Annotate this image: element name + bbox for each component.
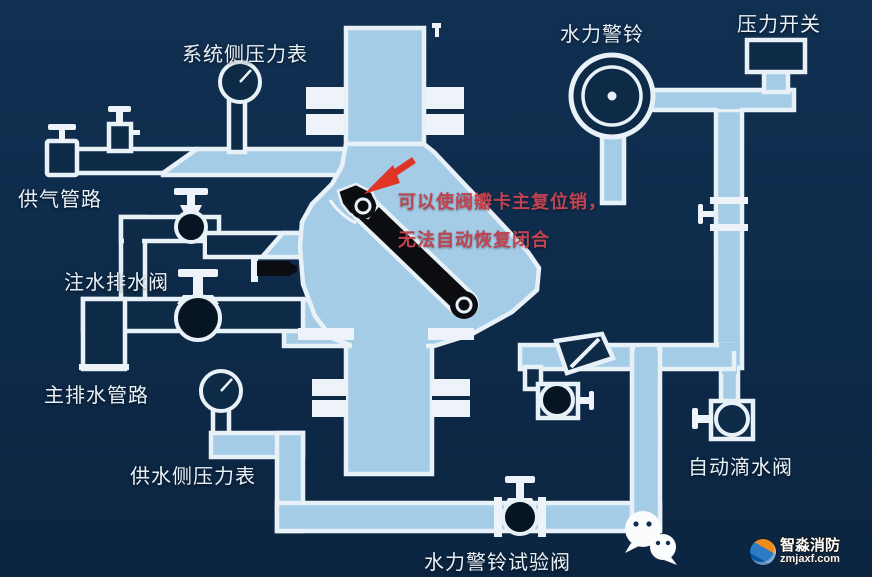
label-pressure-switch: 压力开关 <box>737 8 821 37</box>
label-auto-drip-valve: 自动滴水阀 <box>688 451 793 480</box>
annotation-line1: 可以使阀瓣卡主复位销， <box>398 188 607 214</box>
watermark-brand: 智淼消防 <box>780 538 840 554</box>
watermark: 智淼消防 zmjaxf.com <box>750 538 840 565</box>
system-riser <box>346 28 424 144</box>
air-supply-box <box>47 141 77 175</box>
label-supply-gauge: 供水侧压力表 <box>130 460 256 489</box>
label-system-gauge: 系统侧压力表 <box>182 38 308 67</box>
annotation-line2: 无法自动恢复闭合 <box>398 226 550 252</box>
label-air-supply: 供气管路 <box>18 183 102 212</box>
label-alarm-test-valve: 水力警铃试验阀 <box>424 546 571 575</box>
pressure-switch <box>747 40 805 72</box>
label-alarm-bell: 水力警铃 <box>560 18 644 47</box>
supply-riser <box>346 346 432 474</box>
label-main-drain: 主排水管路 <box>44 379 149 408</box>
watermark-logo-icon <box>750 539 776 565</box>
watermark-url: zmjaxf.com <box>780 554 840 566</box>
diagram-canvas: 系统侧压力表 水力警铃 压力开关 供气管路 注水排水阀 主排水管路 供水侧压力表… <box>0 0 872 577</box>
label-injection-drain-valve: 注水排水阀 <box>64 266 169 295</box>
